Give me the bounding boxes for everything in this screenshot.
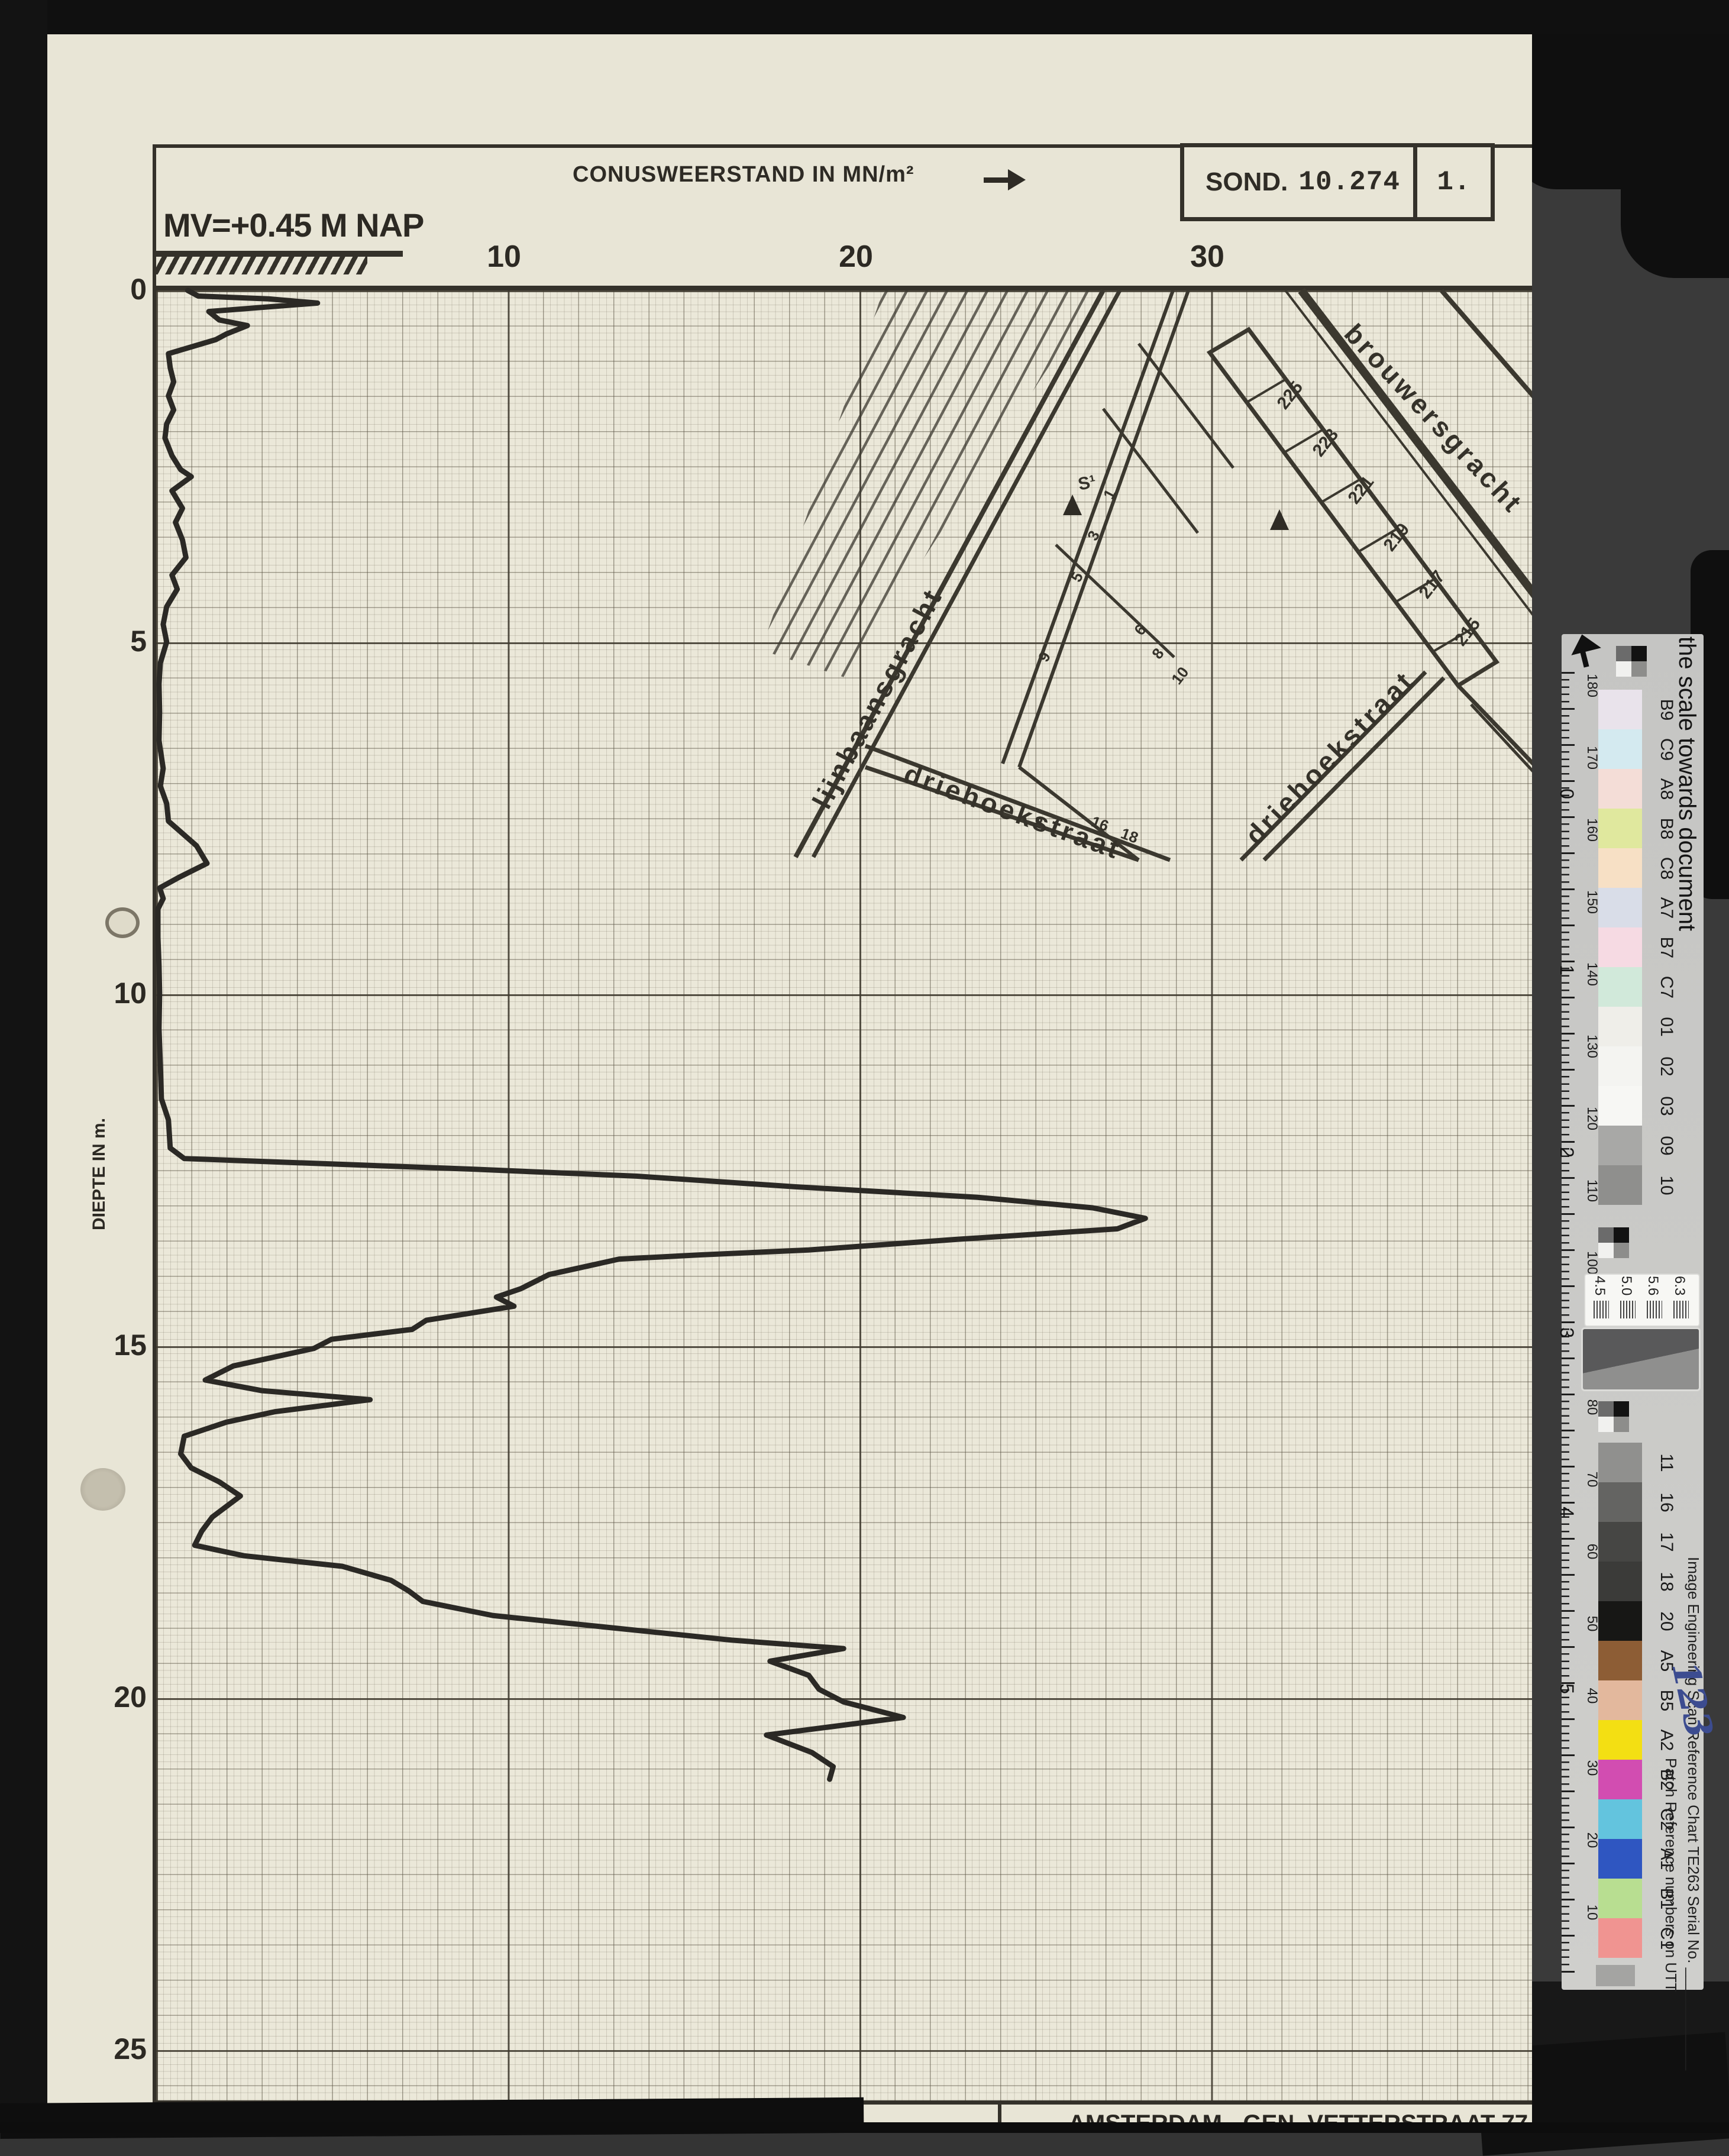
color-patch-B7: B7 xyxy=(1598,927,1704,967)
street-line xyxy=(1442,290,1532,425)
color-patch-label: B7 xyxy=(1657,929,1676,967)
canal-bank-line xyxy=(1301,290,1532,628)
color-patch-label: 18 xyxy=(1657,1563,1676,1601)
color-patch-C7: C7 xyxy=(1598,967,1704,1007)
color-patch-A7: A7 xyxy=(1598,888,1704,927)
up-arrow-stem xyxy=(1580,649,1589,667)
sond-label: SOND. xyxy=(1206,167,1288,197)
y-tick-25: 25 xyxy=(82,2032,147,2066)
gray-reference-card xyxy=(1583,1329,1699,1389)
color-patch-B8: B8 xyxy=(1598,809,1704,848)
sond-number: 10.274 xyxy=(1298,167,1400,198)
ground-level-line xyxy=(154,251,403,257)
house-number: 219 xyxy=(1380,520,1414,555)
color-patch-label: A2 xyxy=(1657,1721,1676,1759)
building-block xyxy=(1210,329,1497,686)
x-tick-30: 30 xyxy=(1172,239,1243,274)
scanner-bed-left xyxy=(0,0,47,2133)
resolution-number: 5.6 xyxy=(1644,1276,1661,1300)
color-patch-01: 01 xyxy=(1598,1007,1704,1046)
color-patch-label: 03 xyxy=(1657,1087,1676,1125)
sond-number-box: SOND. 10.274 xyxy=(1180,143,1426,221)
ruler-cm-label: 0 xyxy=(1560,782,1578,806)
plot-number: 3 xyxy=(1084,528,1103,544)
resolution-number: 5.0 xyxy=(1618,1276,1634,1300)
y-tick-0: 0 xyxy=(82,272,147,306)
color-patch-label: 02 xyxy=(1657,1048,1676,1085)
plot-number: 10 xyxy=(1168,663,1192,687)
color-patch-label: 17 xyxy=(1657,1523,1676,1561)
color-patch-label: 10 xyxy=(1657,1166,1676,1204)
color-patch-label: 16 xyxy=(1657,1483,1676,1521)
ground-level-label: MV=+0.45 M NAP xyxy=(163,206,424,244)
sondering-marker-icon xyxy=(1270,509,1289,530)
street-label-driehoekstraat-1: driehoekstraat xyxy=(900,758,1126,865)
scanner-clamp-top-right-2 xyxy=(1621,0,1729,278)
street-line xyxy=(1264,678,1444,860)
color-patch-03: 03 xyxy=(1598,1086,1704,1126)
y-tick-10: 10 xyxy=(82,976,147,1010)
ruler-cm-label: 5 xyxy=(1560,1677,1578,1701)
depth-zero-line xyxy=(153,286,1532,290)
street-label-driehoekstraat-2: driehoekstraat xyxy=(1239,664,1420,851)
color-patch-17: 17 xyxy=(1598,1522,1704,1562)
sondering-document: CONUSWEERSTAND IN MN/m² SOND. 10.274 1. … xyxy=(46,31,1532,2123)
x-axis-arrow-head-icon xyxy=(1008,169,1026,190)
resolution-number: 4.5 xyxy=(1591,1276,1608,1300)
color-patch-B9: B9 xyxy=(1598,690,1704,729)
y-tick-5: 5 xyxy=(82,624,147,658)
color-patch-C9: C9 xyxy=(1598,729,1704,769)
x-tick-10: 10 xyxy=(468,239,539,274)
chart-area: S¹ lijnbaansgracht brouwersgracht drieho… xyxy=(156,290,1532,2100)
color-patch-label: 11 xyxy=(1657,1444,1676,1482)
color-patch-09: 09 xyxy=(1598,1126,1704,1165)
y-tick-20: 20 xyxy=(82,1680,147,1714)
scanner-bed-top xyxy=(0,0,1729,34)
house-number: 217 xyxy=(1415,567,1449,603)
sheet-number: 1. xyxy=(1437,167,1471,198)
color-patch-16: 16 xyxy=(1598,1482,1704,1522)
color-patch-label: A7 xyxy=(1657,889,1676,927)
color-patch-label: A8 xyxy=(1657,770,1676,808)
color-patch-label: B8 xyxy=(1657,810,1676,848)
color-patch-A8: A8 xyxy=(1598,769,1704,809)
marker-label: S¹ xyxy=(1077,471,1098,494)
building-line xyxy=(1056,545,1174,657)
x-tick-20: 20 xyxy=(820,239,891,274)
map-inset: S¹ lijnbaansgracht brouwersgracht drieho… xyxy=(725,290,1532,861)
color-patch-02: 02 xyxy=(1598,1046,1704,1086)
house-number: 223 xyxy=(1309,425,1343,461)
color-patch-label: C9 xyxy=(1657,730,1676,768)
color-patch-label: B9 xyxy=(1657,691,1676,729)
round-stain xyxy=(80,1468,125,1511)
checker-patch xyxy=(1598,1227,1629,1258)
ruler-cm-label: 3 xyxy=(1560,1321,1578,1344)
color-patch-10: 10 xyxy=(1598,1165,1704,1205)
color-patch-label: 09 xyxy=(1657,1127,1676,1165)
checker-patch xyxy=(1616,646,1647,677)
company-address: AMSTERDAM - GEN. VETTERSTRAAT 77 xyxy=(1068,2110,1528,2123)
x-axis-title: CONUSWEERSTAND IN MN/m² xyxy=(573,162,914,188)
color-patch-11: 11 xyxy=(1598,1443,1704,1482)
strip-footer-utt: Patch Reference numbers on UTT xyxy=(1662,1758,1680,2012)
checker-patch xyxy=(1598,1401,1629,1432)
building-line xyxy=(1103,409,1198,533)
resolution-number: 6.3 xyxy=(1671,1276,1688,1300)
color-patch-label: C8 xyxy=(1657,849,1676,887)
ruler-cm-label: 2 xyxy=(1560,1140,1578,1164)
building-line xyxy=(1458,686,1532,790)
x-axis-arrow-icon xyxy=(984,177,1010,183)
smudge-patch xyxy=(1596,1965,1635,1986)
house-number: 221 xyxy=(1345,473,1378,508)
color-patch-label: 20 xyxy=(1657,1602,1676,1640)
ruler-cm-label: 4 xyxy=(1560,1500,1578,1524)
scan-reference-strip: 1801701601501401301201101009080706050403… xyxy=(1562,634,1704,1990)
sondering-marker-icon xyxy=(1063,494,1082,515)
ink-ring-stain xyxy=(105,907,140,938)
sheet-number-box: 1. xyxy=(1413,143,1495,221)
color-patch-label: 01 xyxy=(1657,1008,1676,1046)
y-tick-15: 15 xyxy=(82,1328,147,1362)
house-number: 215 xyxy=(1451,615,1485,650)
color-patch-C8: C8 xyxy=(1598,848,1704,888)
ruler-cm-label: 1 xyxy=(1560,958,1578,982)
footer-divider xyxy=(998,2100,1001,2123)
color-patch-label: C7 xyxy=(1657,968,1676,1006)
ground-hatch-symbol xyxy=(154,257,367,274)
resolution-test-card: 4.55.05.66.3 xyxy=(1585,1275,1699,1326)
scanner-bed-bottom xyxy=(0,2122,1729,2133)
strip-footer-serial: Image Engineering Scan Reference Chart T… xyxy=(1685,1557,1702,2024)
